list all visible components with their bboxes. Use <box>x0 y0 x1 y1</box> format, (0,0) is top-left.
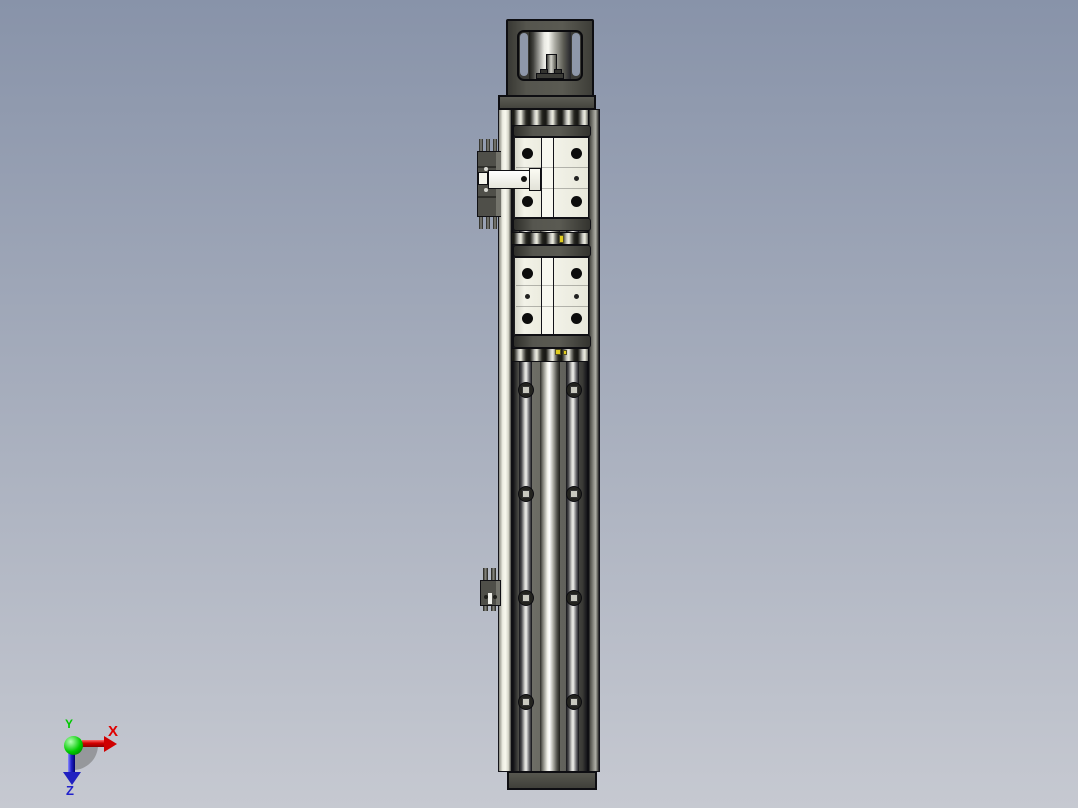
sensor-screw-right <box>493 595 497 599</box>
window-slot-left <box>520 33 528 76</box>
grease-fitting-yellow <box>555 349 561 355</box>
motor-window <box>517 30 583 81</box>
bearing-roller-row <box>512 348 588 362</box>
carriage-center-dot <box>574 176 579 181</box>
origin-sphere <box>64 736 83 755</box>
carriage-bolt-hole <box>522 313 533 324</box>
carriage-bolt-hole <box>522 196 533 207</box>
carriage-end-cap-bottom <box>513 218 591 231</box>
sensor-screw-left <box>484 595 488 599</box>
sensor-pin-bottom <box>479 216 483 229</box>
sensor-pin-bottom <box>493 216 497 229</box>
carriage-bolt-hole <box>571 313 582 324</box>
bearing-roller-row <box>512 232 588 245</box>
sensor-slit <box>488 593 492 604</box>
carriage-center-dot <box>574 294 579 299</box>
rail-bolt-nut <box>570 386 578 394</box>
lower-sensor-block <box>480 580 501 606</box>
carriage-end-cap-top <box>513 245 591 257</box>
rail-bolt-nut <box>570 490 578 498</box>
sensor-clamp-white <box>478 172 488 185</box>
window-slot-right <box>572 33 580 76</box>
rail-bolt-nut <box>570 594 578 602</box>
sensor-arm-tab <box>529 168 541 191</box>
x-axis-shaft <box>82 740 104 747</box>
rail-bolt-nut <box>522 490 530 498</box>
carriage-seam <box>516 167 588 168</box>
grease-fitting-yellow <box>559 235 564 243</box>
carriage-end-cap-top <box>513 125 591 137</box>
end-plate <box>507 771 597 790</box>
sensor-pin-bottom <box>486 216 490 229</box>
y-axis-label: Y <box>65 718 73 730</box>
carriage-bolt-hole <box>571 268 582 279</box>
sensor-face-strip <box>496 581 500 605</box>
carriage-bolt-hole <box>522 268 533 279</box>
shaft-base <box>536 73 564 79</box>
cad-viewport[interactable]: X Z Y <box>0 0 1078 808</box>
rail-bolt-nut <box>570 698 578 706</box>
carriage-bolt-hole <box>571 148 582 159</box>
x-axis-label: X <box>108 724 118 739</box>
carriage-seam <box>516 306 588 307</box>
axis-triad: X Z Y <box>40 710 135 800</box>
carriage-bolt-hole <box>522 148 533 159</box>
carriage-rail-strip <box>541 138 554 217</box>
carriage-end-cap-bottom <box>513 335 591 348</box>
z-axis-shaft <box>68 752 75 774</box>
motor-housing <box>506 19 594 97</box>
carriage-rail-strip <box>541 258 554 334</box>
carriage-bolt-hole <box>571 196 582 207</box>
rail-bolt-nut <box>522 386 530 394</box>
motor-flange-plate <box>498 95 596 110</box>
z-axis-label: Z <box>66 784 74 797</box>
carriage-center-dot <box>525 294 530 299</box>
grease-fitting-yellow <box>563 350 567 355</box>
rail-bolt-nut <box>522 698 530 706</box>
sensor-groove-bottom <box>478 196 496 198</box>
carriage-seam <box>516 285 588 286</box>
sensor-arm-screw <box>521 176 527 182</box>
rail-bolt-nut <box>522 594 530 602</box>
bearing-roller-row <box>512 109 588 126</box>
